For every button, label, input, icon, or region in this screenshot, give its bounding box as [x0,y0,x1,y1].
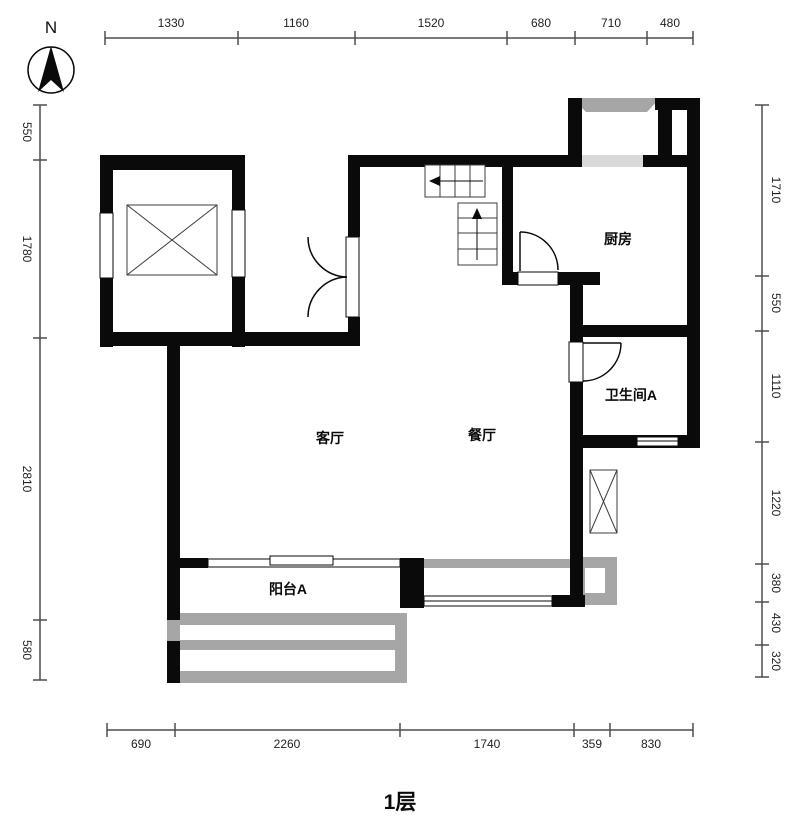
ledge-band [424,559,573,568]
wall [167,641,180,683]
wall [180,558,208,568]
dim-right-3: 1220 [769,490,783,517]
wall [232,155,245,210]
dim-top-0: 1330 [158,16,185,30]
dim-bottom-2: 1740 [474,737,501,751]
wall [643,155,700,167]
bathroom-door-threshold [569,342,583,382]
wall [502,272,518,285]
planter-box-inner [585,568,605,593]
wall [100,155,113,213]
dim-right-2: 1110 [769,374,783,399]
wall [100,332,360,346]
balcony-railing [167,613,407,683]
elevator-door-right [232,210,245,277]
wall [502,167,513,272]
wall-column [400,558,424,608]
dim-left-3: 580 [20,640,34,660]
dim-top-4: 710 [601,16,621,30]
dim-left-1: 1780 [20,236,34,263]
railing-block [167,613,407,683]
wall [655,98,700,110]
bay-window-band [582,155,643,167]
entry-door-swing [308,277,347,317]
dim-top-5: 480 [660,16,680,30]
bay-top-band [572,98,660,112]
dim-right-1: 550 [769,293,783,313]
staircase [425,165,497,265]
railing-slot [180,650,395,671]
wall [348,155,360,237]
room-label-dining: 餐厅 [468,425,496,445]
room-label-kitchen: 厨房 [604,229,632,249]
wall [582,325,700,337]
room-label-balcony-a: 阳台A [269,579,307,599]
dim-right-5: 430 [769,613,783,633]
service-shaft [590,470,617,533]
railing-slot [180,625,395,640]
dim-right-4: 380 [769,573,783,593]
bathroom-door-swing [583,343,621,381]
room-label-bathroom-a: 卫生间A [605,385,657,405]
dim-top-3: 680 [531,16,551,30]
kitchen-door-threshold [518,272,558,285]
wall [568,98,582,167]
sliding-panel [270,556,333,565]
dim-right-0: 1710 [769,177,783,204]
room-label-living: 客厅 [316,428,344,448]
dim-top-2: 1520 [418,16,445,30]
wall [687,98,700,448]
dim-bottom-1: 2260 [274,737,301,751]
elevator [100,205,245,278]
elevator-door-left [100,213,113,278]
dim-bottom-3: 359 [582,737,602,751]
wall [552,595,585,607]
floor-plan-drawing [0,0,800,832]
entry-door-swing [308,237,347,277]
dim-bottom-0: 690 [131,737,151,751]
wall [100,155,245,170]
compass-north-label: N [45,18,57,38]
dim-bottom-4: 830 [641,737,661,751]
wall [348,317,360,345]
page-title: 1层 [384,786,417,816]
entry-door-leaves [346,237,359,317]
wall [167,332,180,620]
dim-left-0: 550 [20,122,34,142]
dim-right-6: 320 [769,651,783,671]
kitchen-door-swing [520,232,558,270]
north-compass [28,46,74,93]
dim-top-1: 1160 [283,16,309,30]
floor-plan: N 1330 1160 1520 680 710 480 690 2260 17… [0,0,800,832]
dim-left-2: 2810 [20,466,34,493]
